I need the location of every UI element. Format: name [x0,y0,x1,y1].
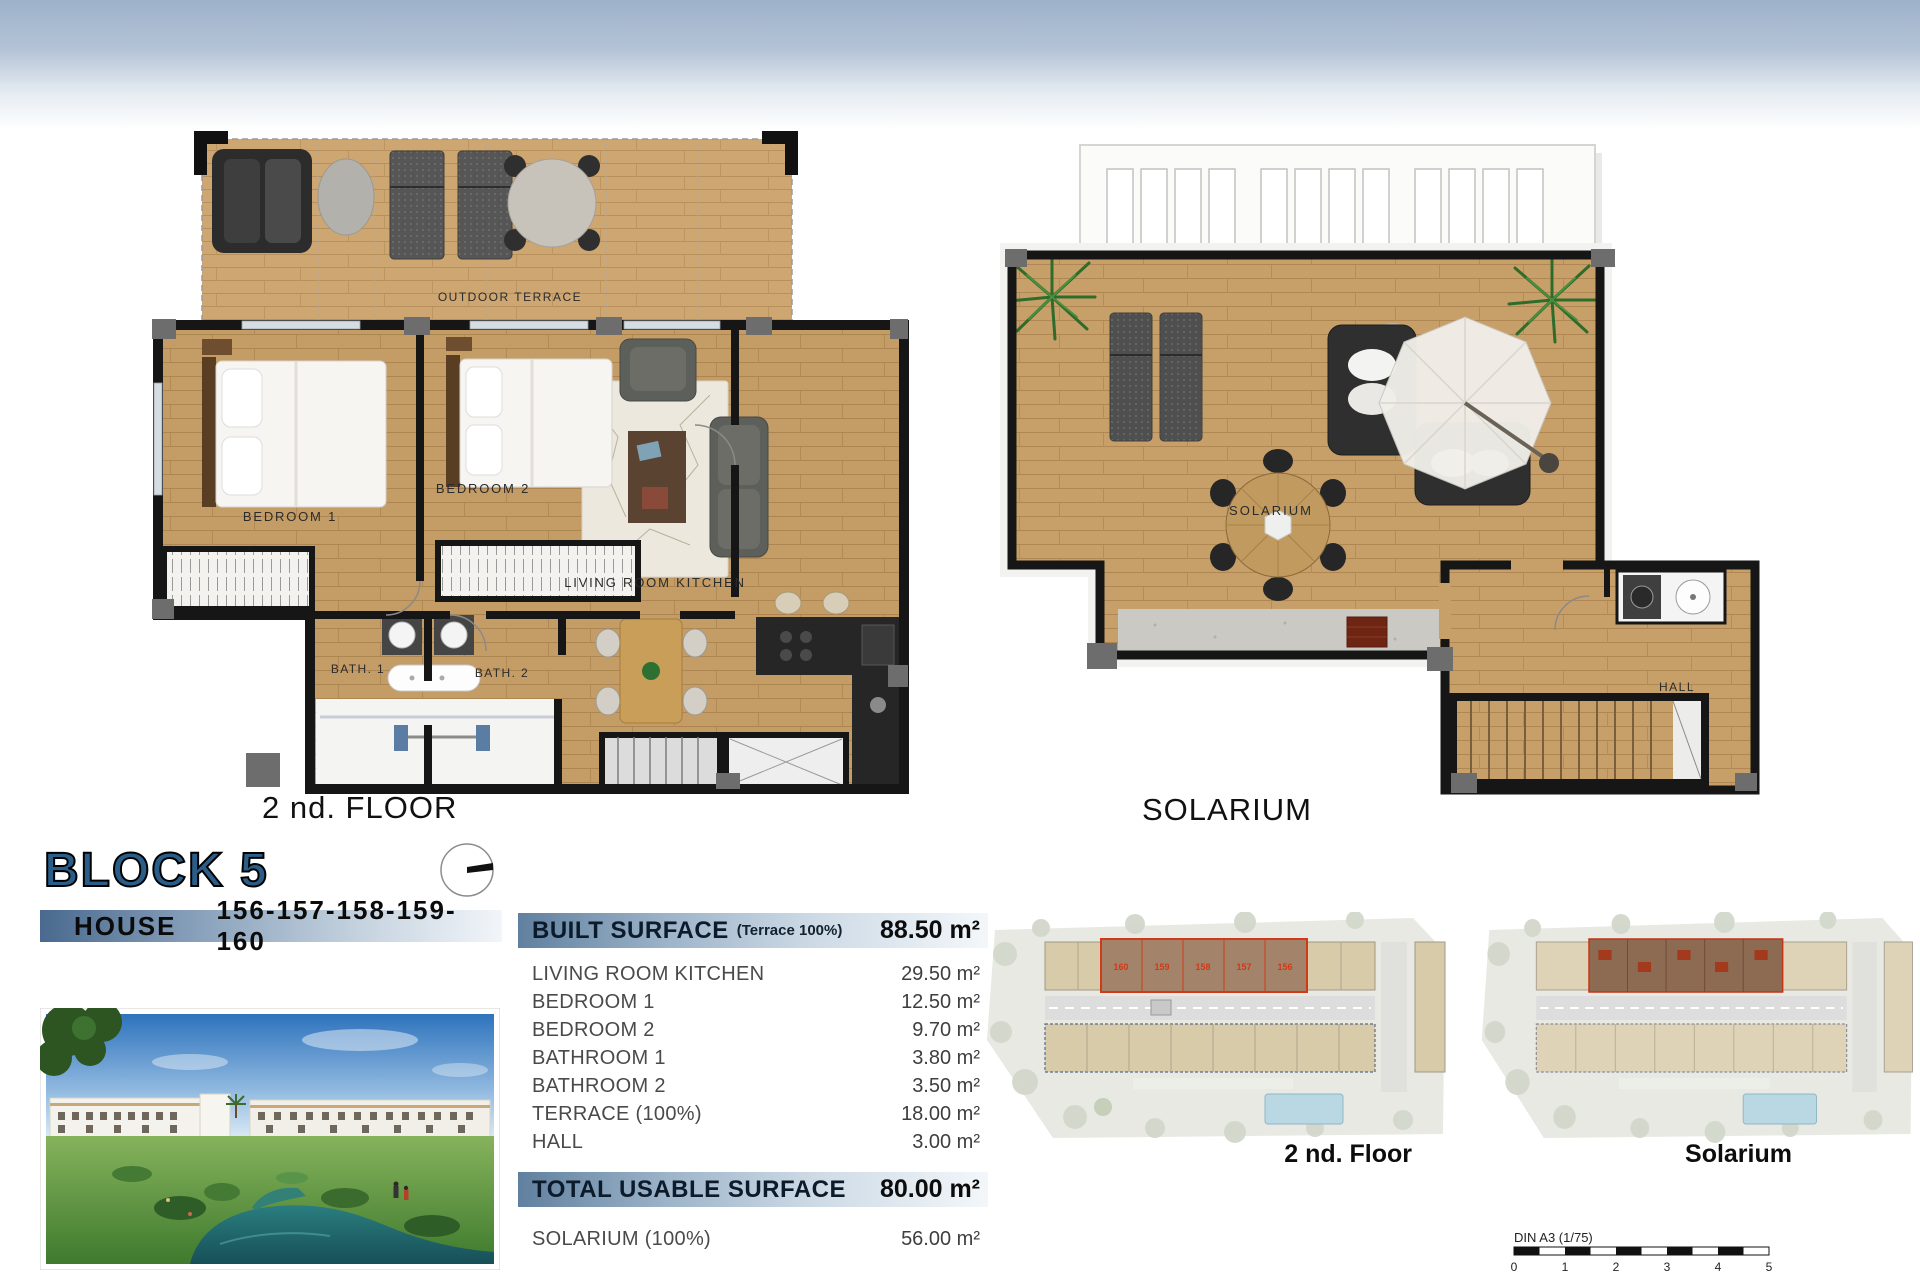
table-row: TERRACE (100%) 18.00 m² [518,1100,988,1128]
row-value: 3.80 m² [912,1047,980,1070]
table-row: BATHROOM 2 3.50 m² [518,1072,988,1100]
floor-plan-2nd: OUTDOOR TERRACE [150,125,910,797]
development-photo [40,1008,500,1270]
table-row: BATHROOM 1 3.80 m² [518,1044,988,1072]
living-label: LIVING ROOM KITCHEN [564,575,746,590]
house-bar: HOUSE 156-157-158-159-160 [40,910,502,942]
table-row: LIVING ROOM KITCHEN 29.50 m² [518,960,988,988]
table-row: BEDROOM 1 12.50 m² [518,988,988,1016]
bath1-label: BATH. 1 [331,662,385,676]
bath2-label: BATH. 2 [475,666,529,680]
hall-sink-unit [1617,571,1725,623]
unit-number: 159 [1154,962,1169,972]
bedroom2-label: BEDROOM 2 [436,481,530,496]
row-value: 18.00 m² [901,1103,980,1126]
row-label: LIVING ROOM KITCHEN [532,963,764,986]
scale-bar-label: DIN A3 (1/75) [1514,1230,1593,1245]
site-plan-solarium-caption: Solarium [1640,1140,1792,1169]
row-value: 56.00 m² [901,1228,980,1251]
hall-stairs [1453,697,1705,783]
unit-number: 158 [1195,962,1210,972]
table-row: HALL 3.00 m² [518,1128,988,1156]
total-surface-label: TOTAL USABLE SURFACE [532,1176,846,1204]
unit-number: 157 [1236,962,1251,972]
row-label: BEDROOM 1 [532,991,655,1014]
site-plan-solarium [1478,912,1920,1144]
unit-number: 156 [1277,962,1292,972]
north-arrow-icon [438,841,496,899]
doormat [1347,617,1387,647]
terrace-ottoman [318,159,374,235]
total-surface-value: 80.00 m² [880,1175,980,1204]
built-surface-label: BUILT SURFACE [532,917,729,945]
brochure-page: OUTDOOR TERRACE [0,0,1920,1280]
row-label: TERRACE (100%) [532,1103,702,1126]
row-label: HALL [532,1131,583,1154]
bedroom1-label: BEDROOM 1 [243,509,337,524]
row-label: SOLARIUM (100%) [532,1228,711,1251]
row-label: BEDROOM 2 [532,1019,655,1042]
closet-bedroom2 [438,543,638,599]
unit-number: 160 [1113,962,1128,972]
house-numbers: 156-157-158-159-160 [216,895,502,957]
scale-tick: 2 [1613,1260,1620,1274]
hall-room-label: HALL [1659,680,1695,694]
row-label: BATHROOM 2 [532,1075,666,1098]
site-plan-2nd-floor: 160 159 158 157 156 [983,912,1453,1144]
row-value: 12.50 m² [901,991,980,1014]
top-gradient-band [0,0,1920,130]
block-title: BLOCK 5 [44,843,269,898]
scale-tick: 4 [1715,1260,1722,1274]
row-value: 29.50 m² [901,963,980,986]
scale-tick: 0 [1511,1260,1518,1274]
surface-rows: LIVING ROOM KITCHEN 29.50 m² BEDROOM 1 1… [518,960,988,1156]
bedroom2-bed [446,337,612,487]
built-surface-note: (Terrace 100%) [737,922,843,939]
terrace-sofa [212,149,312,253]
solarium-room-label: SOLARIUM [1229,503,1313,518]
surface-table: BUILT SURFACE (Terrace 100%) 88.50 m² LI… [518,913,988,1253]
solarium-plan: SOLARIUM HALL [995,125,1785,800]
scale-tick: 1 [1562,1260,1569,1274]
table-row: BEDROOM 2 9.70 m² [518,1016,988,1044]
row-value: 3.50 m² [912,1075,980,1098]
solarium-plan-caption: SOLARIUM [1142,792,1312,828]
row-value: 9.70 m² [912,1019,980,1042]
built-surface-value: 88.50 m² [880,916,980,945]
total-surface-header: TOTAL USABLE SURFACE 80.00 m² [518,1172,988,1207]
row-value: 3.00 m² [912,1131,980,1154]
floor-plan-caption: 2 nd. FLOOR [262,790,457,826]
built-surface-header: BUILT SURFACE (Terrace 100%) 88.50 m² [518,913,988,948]
row-label: BATHROOM 1 [532,1047,666,1070]
outdoor-terrace-area: OUTDOOR TERRACE [194,131,798,325]
scale-tick: 3 [1664,1260,1671,1274]
house-label: HOUSE [74,911,176,942]
outdoor-terrace-label: OUTDOOR TERRACE [438,290,582,304]
scale-tick: 5 [1766,1260,1773,1274]
scale-bar: DIN A3 (1/75) 0 1 2 3 4 5 [1502,1228,1792,1280]
bedroom1-bed [202,339,386,507]
closet-bedroom1 [164,549,312,609]
solarium-surface-row: SOLARIUM (100%) 56.00 m² [518,1225,988,1253]
site-plan-2nd-floor-caption: 2 nd. Floor [1240,1140,1412,1169]
terrace-table-set [504,155,600,251]
